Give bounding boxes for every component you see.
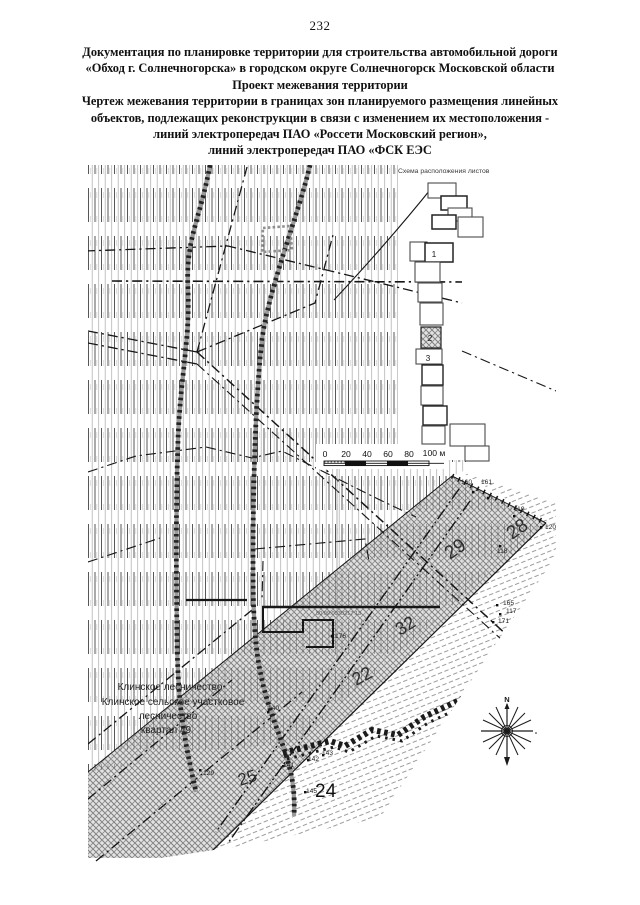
sheet-scheme-title: Схема расположения листов (398, 168, 490, 175)
point-label: 161 (481, 479, 492, 486)
compass-rose-icon: N (481, 695, 537, 766)
sheet-number: 3 (426, 353, 431, 363)
scale-tick-label: 0 (323, 449, 328, 459)
survey-map: 160 161 119 120 118 165 117 171 176 129 … (0, 0, 640, 905)
document-page: 232 Документация по планировке территори… (0, 0, 640, 905)
point-label: 120 (545, 524, 556, 531)
point-label: 141 (283, 762, 294, 769)
point-label: 129 (203, 770, 214, 777)
scale-tick-label: 80 (404, 449, 414, 459)
sheet-rects (410, 183, 489, 461)
scale-tick-label: 60 (383, 449, 393, 459)
point-label: 143 (322, 750, 333, 757)
scale-tick-label: 100 м (423, 448, 446, 458)
cadastral-number-label: 50:09:0030217:13 (316, 611, 361, 617)
point-label: 119 (514, 506, 525, 513)
point-label: 118 (497, 548, 508, 555)
scale-tick-label: 20 (341, 449, 351, 459)
sheet-number: 1 (432, 249, 437, 259)
forest-label-line: Клинское лесничество (118, 682, 223, 693)
forest-label-line: лесничество (139, 711, 198, 722)
point-label: 176 (335, 633, 346, 640)
forest-label-line: квартал 49 (141, 725, 192, 736)
point-label: 171 (498, 618, 509, 625)
forest-label-line: Клинское сельское участковое (102, 697, 245, 708)
compass-north-label: N (504, 695, 509, 704)
point-label: 140 (268, 705, 279, 712)
point-label: 117 (506, 608, 517, 615)
point-label: 142 (308, 756, 319, 763)
point-label: 165 (503, 600, 514, 607)
sheet-number: 2 (428, 333, 433, 343)
scale-tick-label: 40 (362, 449, 372, 459)
area-number: 24 (315, 781, 337, 802)
point-label: 160 (461, 479, 472, 486)
scale-bar: 0 20 40 60 80 100 м (316, 444, 448, 469)
